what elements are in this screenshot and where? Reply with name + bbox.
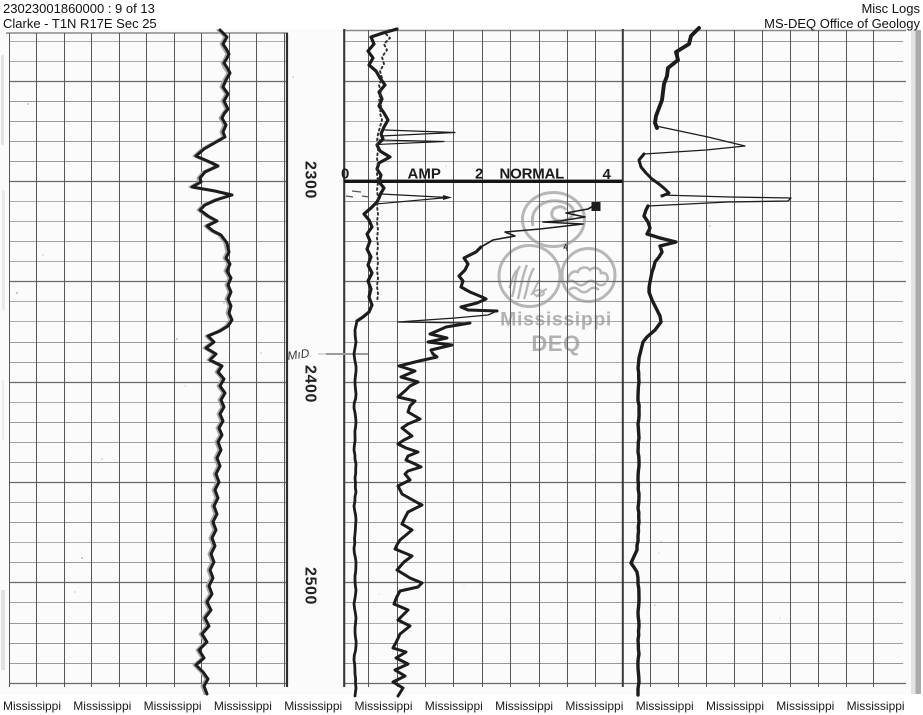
svg-text:2: 2: [475, 166, 483, 183]
svg-text:AMP: AMP: [408, 166, 441, 183]
svg-text:23023001860000 : 9 of 13: 23023001860000 : 9 of 13: [3, 1, 155, 16]
svg-text:NORMAL: NORMAL: [500, 166, 565, 183]
svg-text:Mississippi: Mississippi: [425, 699, 483, 713]
svg-text:Mississippi: Mississippi: [776, 699, 834, 713]
svg-text:0: 0: [341, 166, 349, 183]
svg-text:Mississippi: Mississippi: [565, 699, 623, 713]
svg-text:Mississippi: Mississippi: [847, 699, 905, 713]
svg-text:Mississippi: Mississippi: [636, 699, 694, 713]
svg-text:2300: 2300: [302, 161, 319, 199]
svg-text:4: 4: [603, 166, 612, 183]
svg-text:Mississippi: Mississippi: [3, 699, 61, 713]
svg-text:2500: 2500: [302, 567, 319, 605]
svg-text:Mississippi: Mississippi: [284, 699, 342, 713]
svg-text:Mississippi: Mississippi: [144, 699, 202, 713]
svg-text:Mississippi: Mississippi: [355, 699, 413, 713]
svg-text:DEQ: DEQ: [531, 331, 580, 356]
svg-text:Mississippi: Mississippi: [214, 699, 272, 713]
svg-text:Mississippi: Mississippi: [706, 699, 764, 713]
svg-text:2400: 2400: [302, 365, 319, 403]
svg-text:Misc Logs: Misc Logs: [861, 1, 920, 16]
svg-text:Mississippi: Mississippi: [495, 699, 553, 713]
svg-text:Clarke - T1N R17E Sec 25: Clarke - T1N R17E Sec 25: [3, 16, 157, 31]
svg-text:Mississippi: Mississippi: [73, 699, 131, 713]
svg-text:MS-DEQ Office of Geology: MS-DEQ Office of Geology: [764, 16, 920, 31]
